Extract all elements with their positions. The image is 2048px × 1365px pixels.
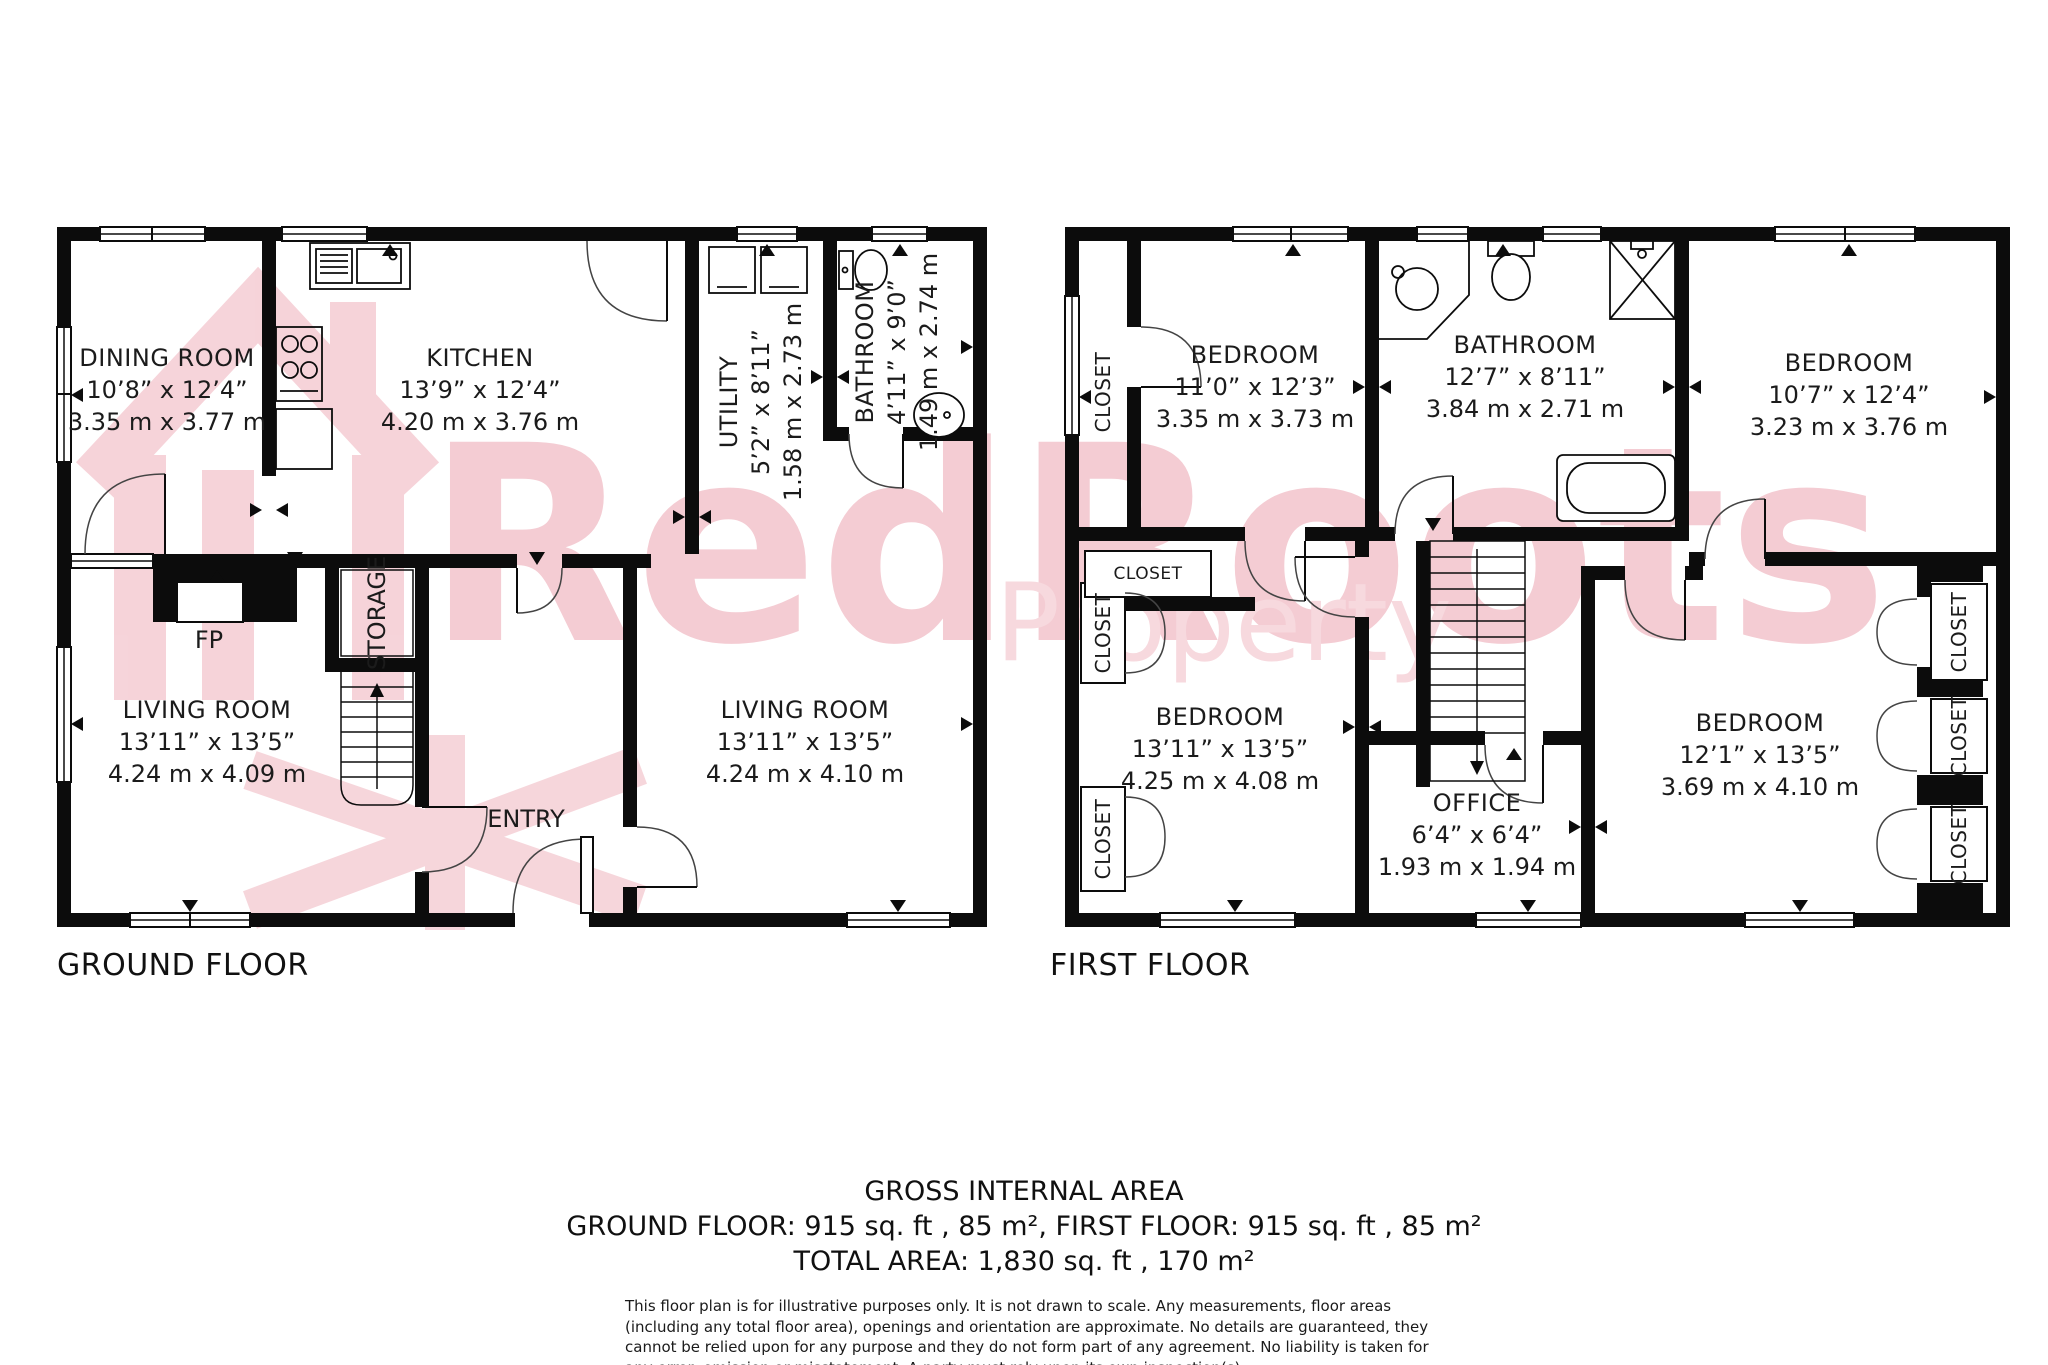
first-floor-title: FIRST FLOOR: [1050, 948, 1250, 983]
room-dims-ft: 11’0” x 12’3”: [1156, 371, 1354, 403]
stove: [276, 327, 322, 401]
room-dims-ft: 12’7” x 8’11”: [1426, 361, 1624, 393]
gross-area-title: GROSS INTERNAL AREA: [0, 1176, 2048, 1207]
room-label-living-left: LIVING ROOM 13’11” x 13’5” 4.24 m x 4.09…: [108, 694, 306, 790]
room-name: LIVING ROOM: [108, 694, 306, 726]
toilet-first: [1488, 241, 1534, 300]
room-dims-m: 4.24 m x 4.10 m: [706, 758, 904, 790]
fireplace: [177, 582, 243, 622]
room-name: UTILITY: [713, 303, 745, 501]
room-label-storage: STORAGE: [361, 556, 393, 670]
room-dims-m: 3.23 m x 3.76 m: [1750, 411, 1948, 443]
room-name: FP: [195, 624, 223, 656]
room-dims-m: 3.69 m x 4.10 m: [1661, 771, 1859, 803]
closet-label-left-1: CLOSET: [1091, 593, 1115, 674]
room-label-bathroom-ground: BATHROOM 4’11” x 9’0” 1.49 m x 2.74 m: [849, 253, 945, 451]
room-dims-ft: 13’11” x 13’5”: [108, 726, 306, 758]
room-label-dining: DINING ROOM 10’8” x 12’4” 3.35 m x 3.77 …: [68, 342, 266, 438]
shower: [1610, 241, 1675, 319]
room-label-bedroom-tl: BEDROOM 11’0” x 12’3” 3.35 m x 3.73 m: [1156, 339, 1354, 435]
room-label-bedroom-tr: BEDROOM 10’7” x 12’4” 3.23 m x 3.76 m: [1750, 347, 1948, 443]
room-dims-ft: 13’11” x 13’5”: [1121, 733, 1319, 765]
room-dims-ft: 13’11” x 13’5”: [706, 726, 904, 758]
room-dims-m: 4.24 m x 4.09 m: [108, 758, 306, 790]
room-label-utility: UTILITY 5’2” x 8’11” 1.58 m x 2.73 m: [713, 303, 809, 501]
gross-area-total: TOTAL AREA: 1,830 sq. ft , 170 m²: [0, 1246, 2048, 1277]
room-label-fp: FP: [195, 624, 223, 656]
disclaimer-text: This floor plan is for illustrative purp…: [625, 1296, 1447, 1365]
room-name: OFFICE: [1378, 787, 1576, 819]
room-label-bathroom-first: BATHROOM 12’7” x 8’11” 3.84 m x 2.71 m: [1426, 329, 1624, 425]
ground-floor-title: GROUND FLOOR: [57, 948, 309, 983]
room-label-entry: ENTRY: [487, 803, 565, 835]
room-name: BEDROOM: [1121, 701, 1319, 733]
room-dims-m: 1.93 m x 1.94 m: [1378, 851, 1576, 883]
room-name: BATHROOM: [849, 253, 881, 451]
room-label-kitchen: KITCHEN 13’9” x 12’4” 4.20 m x 3.76 m: [381, 342, 579, 438]
room-dims-ft: 4’11” x 9’0”: [881, 253, 913, 451]
ground-floor-plan: DINING ROOM 10’8” x 12’4” 3.35 m x 3.77 …: [57, 227, 987, 927]
room-dims-ft: 6’4” x 6’4”: [1378, 819, 1576, 851]
room-dims-ft: 13’9” x 12’4”: [381, 374, 579, 406]
closet-label-right-2: CLOSET: [1947, 696, 1971, 777]
room-name: ENTRY: [487, 803, 565, 835]
room-label-office: OFFICE 6’4” x 6’4” 1.93 m x 1.94 m: [1378, 787, 1576, 883]
front-door: [513, 837, 593, 927]
closet-label-left-2: CLOSET: [1091, 799, 1115, 880]
stairs-up: [341, 672, 413, 805]
room-dims-ft: 10’8” x 12’4”: [68, 374, 266, 406]
room-name: STORAGE: [361, 556, 393, 670]
room-name: KITCHEN: [381, 342, 579, 374]
kitchen-sink-counter: [310, 243, 410, 289]
room-dims-m: 3.35 m x 3.73 m: [1156, 403, 1354, 435]
room-dims-m: 3.35 m x 3.77 m: [68, 406, 266, 438]
corner-sink: [1379, 241, 1469, 339]
room-name: LIVING ROOM: [706, 694, 904, 726]
room-dims-m: 4.20 m x 3.76 m: [381, 406, 579, 438]
room-name: DINING ROOM: [68, 342, 266, 374]
room-label-living-right: LIVING ROOM 13’11” x 13’5” 4.24 m x 4.10…: [706, 694, 904, 790]
bathtub: [1557, 455, 1675, 521]
room-dims-m: 3.84 m x 2.71 m: [1426, 393, 1624, 425]
kitchen-unit: [276, 409, 332, 469]
room-dims-m: 1.58 m x 2.73 m: [777, 303, 809, 501]
closet-label-right-3: CLOSET: [1947, 804, 1971, 885]
room-dims-ft: 12’1” x 13’5”: [1661, 739, 1859, 771]
room-name: BATHROOM: [1426, 329, 1624, 361]
closet-label-right-1: CLOSET: [1947, 592, 1971, 673]
opening-dining-living: [71, 554, 153, 568]
room-name: BEDROOM: [1750, 347, 1948, 379]
room-dims-m: 4.25 m x 4.08 m: [1121, 765, 1319, 797]
room-dims-ft: 10’7” x 12’4”: [1750, 379, 1948, 411]
closet-label-top: CLOSET: [1113, 564, 1182, 584]
room-name: BEDROOM: [1661, 707, 1859, 739]
room-dims-ft: 5’2” x 8’11”: [745, 303, 777, 501]
gross-area-floors: GROUND FLOOR: 915 sq. ft , 85 m², FIRST …: [0, 1211, 2048, 1242]
room-name: BEDROOM: [1156, 339, 1354, 371]
closet-label-strip-tl: CLOSET: [1091, 352, 1115, 433]
room-dims-m: 1.49 m x 2.74 m: [913, 253, 945, 451]
floorplan-page: RedRoots Property: [0, 0, 2048, 1365]
washer-dryer: [709, 247, 807, 293]
room-label-bedroom-br: BEDROOM 12’1” x 13’5” 3.69 m x 4.10 m: [1661, 707, 1859, 803]
first-floor-plan: BEDROOM 11’0” x 12’3” 3.35 m x 3.73 m BA…: [1065, 227, 2010, 927]
room-label-bedroom-bl: BEDROOM 13’11” x 13’5” 4.25 m x 4.08 m: [1121, 701, 1319, 797]
